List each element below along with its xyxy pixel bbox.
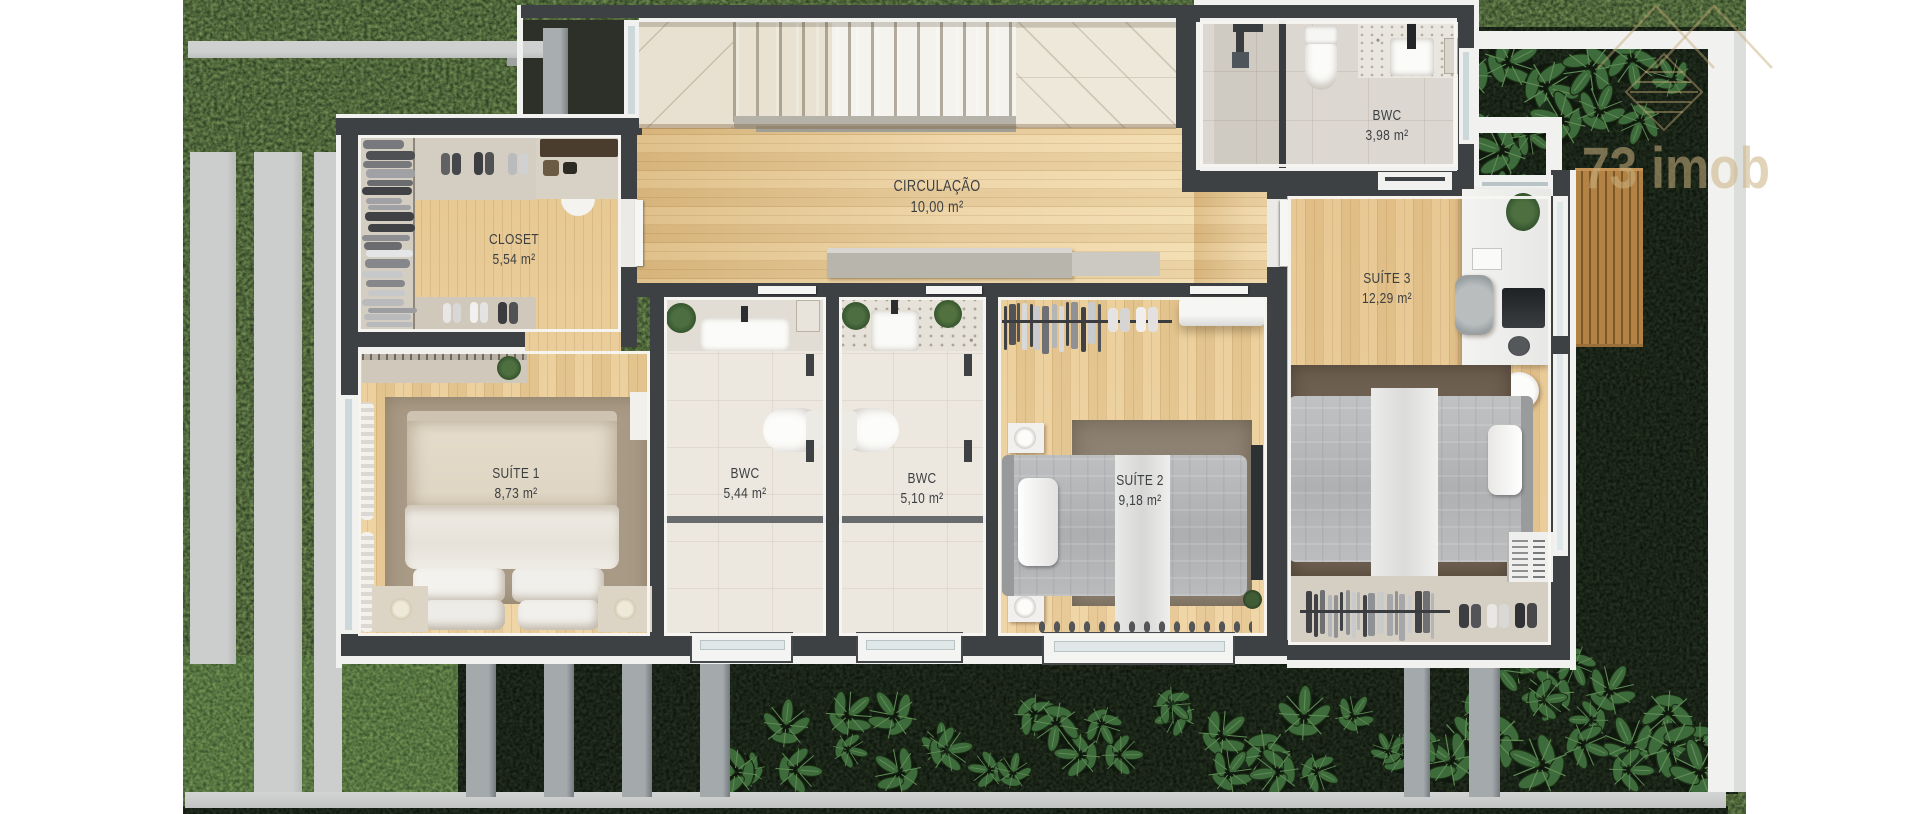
svg-text:73 imob: 73 imob — [1582, 136, 1770, 201]
